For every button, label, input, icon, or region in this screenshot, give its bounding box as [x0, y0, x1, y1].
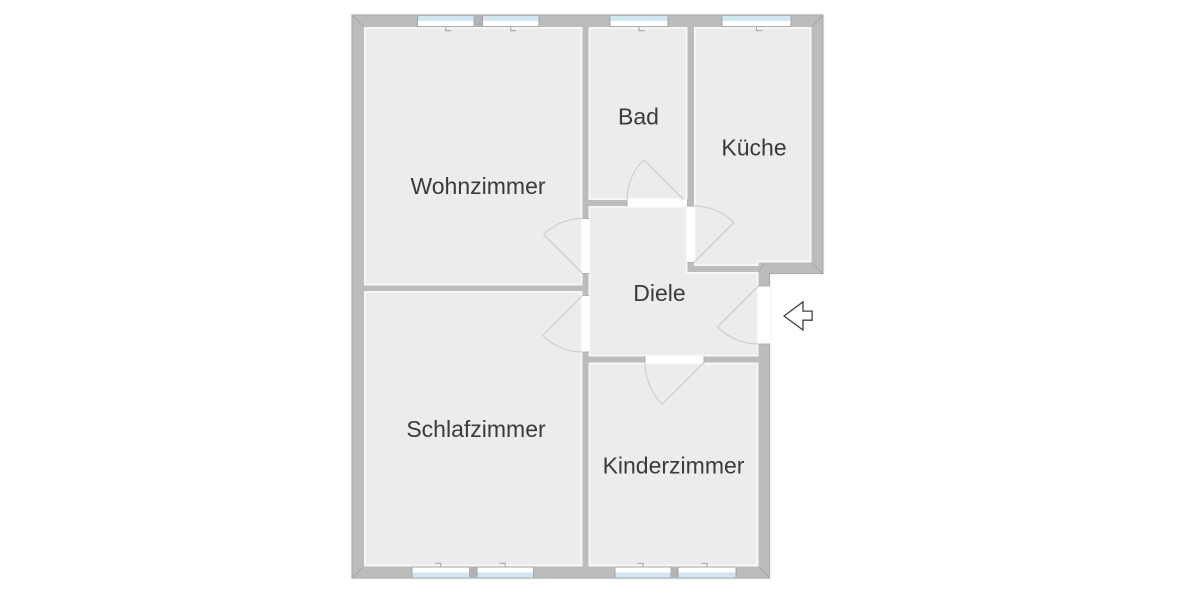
- svg-text:Wohnzimmer: Wohnzimmer: [410, 173, 545, 199]
- svg-text:Bad: Bad: [618, 104, 659, 130]
- svg-text:Kinderzimmer: Kinderzimmer: [603, 453, 745, 479]
- svg-text:Schlafzimmer: Schlafzimmer: [406, 416, 546, 442]
- svg-text:Küche: Küche: [721, 135, 786, 161]
- svg-text:Diele: Diele: [633, 280, 685, 306]
